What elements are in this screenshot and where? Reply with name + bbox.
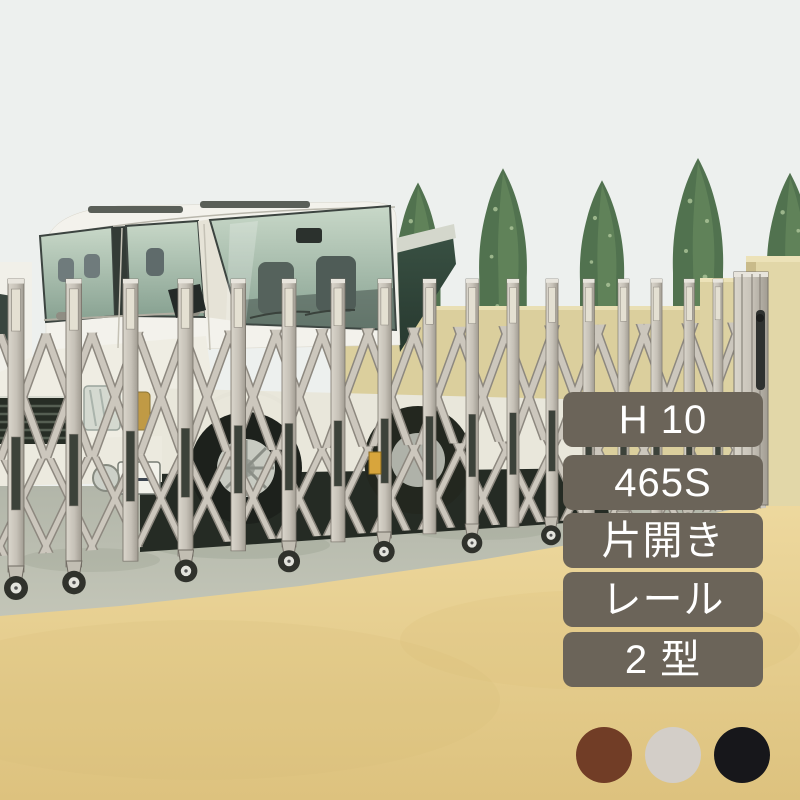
product-photo: H 10 465S 片開き レール 2 型 (0, 0, 800, 800)
color-swatch-brown[interactable] (576, 727, 632, 783)
gate-post (282, 279, 296, 547)
spec-badge-height: H 10 (563, 392, 763, 447)
spec-badge-opening: 片開き (563, 513, 763, 568)
gate-post (546, 279, 558, 523)
gate-post (231, 279, 246, 551)
gate-post (178, 279, 193, 556)
color-swatch-light-gray[interactable] (645, 727, 701, 783)
gate-post (66, 279, 82, 567)
roof-rail (200, 201, 310, 208)
gate-post (423, 279, 436, 534)
gate-post (378, 279, 391, 538)
gate-post (331, 279, 345, 542)
spec-badge-size: 465S (563, 455, 763, 510)
rearview-mirror (296, 228, 322, 243)
gate-latch (756, 310, 765, 390)
warning-sticker (369, 452, 381, 474)
color-swatch-black[interactable] (714, 727, 770, 783)
gate-post (8, 279, 24, 572)
gate-post (466, 279, 478, 530)
gate-post (123, 279, 138, 561)
roof-rail (88, 206, 183, 213)
gate-post (507, 279, 519, 527)
spec-badge-type: 2 型 (563, 632, 763, 687)
spec-badge-rail: レール (563, 572, 763, 627)
